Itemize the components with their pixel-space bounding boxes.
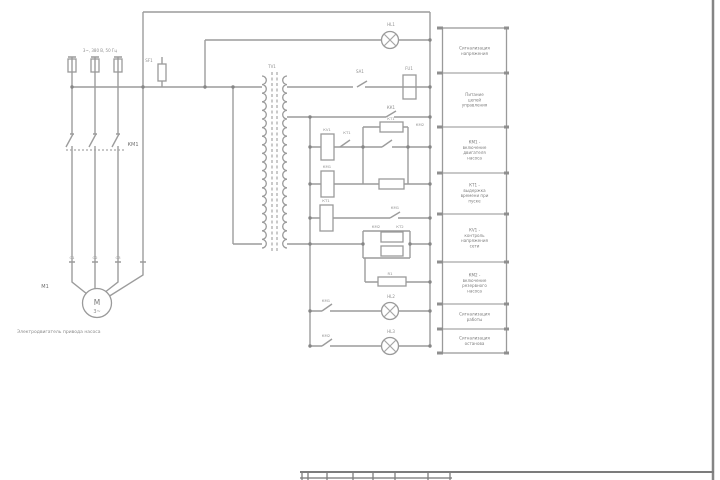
power-circuit: 3~, 380 В, 50 Гц КМ1 С1 С2 С3 (17, 12, 262, 335)
lamp-icon (382, 338, 399, 355)
legend-ticks (437, 27, 509, 355)
title-block (300, 472, 714, 480)
junction-dots (70, 38, 431, 347)
breaker-label: SF1 (145, 58, 153, 63)
secondary-winding (283, 76, 287, 248)
relay-coil (379, 179, 404, 189)
contactor-label: КМ1 (127, 142, 138, 148)
parallel-block-2: КМ2 КТ2 (363, 224, 410, 258)
breaker-icon (158, 57, 166, 87)
block-label: КМ2 (372, 224, 381, 229)
contact-label: КМ2 (322, 333, 331, 338)
coil-label: КМ1 (323, 164, 332, 169)
terminal-label: С3 (115, 255, 121, 260)
legend-column (437, 27, 509, 355)
relay-coil (320, 205, 333, 231)
coil-label: КТ1 (322, 198, 330, 203)
lamp-label: HL1 (387, 22, 395, 27)
motor-symbol: М 3~ (83, 289, 112, 318)
block-label: КТ1 (387, 116, 395, 121)
supply-label: 3~, 380 В, 50 Гц (83, 48, 117, 53)
relay-coil (321, 134, 334, 160)
schematic-page: 3~, 380 В, 50 Гц КМ1 С1 С2 С3 (0, 0, 720, 480)
control-fuse-label: FU1 (405, 66, 413, 71)
lamp-icon (382, 32, 399, 49)
relay-coil (321, 171, 334, 197)
transformer: ТV1 (233, 64, 287, 252)
motor-caption: Электродвигатель привода насоса (17, 329, 101, 335)
block-label: КТ2 (396, 224, 404, 229)
contact-label: КК1 (387, 105, 396, 110)
motor-letter: М (94, 298, 100, 307)
lamp-label: HL2 (387, 294, 395, 299)
neutral-wire (108, 12, 143, 297)
contact-label: КТ1 (343, 130, 351, 135)
motor-phase: 3~ (93, 309, 100, 315)
schematic-canvas: 3~, 380 В, 50 Гц КМ1 С1 С2 С3 (0, 0, 720, 480)
lamp-icon (382, 303, 399, 320)
resistor-label: R1 (387, 271, 393, 276)
switch-label: SA1 (356, 69, 364, 74)
terminal-label: С1 (69, 255, 75, 260)
contact-label: КМ1 (322, 298, 331, 303)
parallel-block-1: КТ1 КМ2 (363, 116, 430, 184)
control-circuit: SF1 HL1 ТV1 SA1 FU1 КК1 КV1 КТ1 (70, 12, 431, 355)
contact-label: КМ1 (391, 205, 400, 210)
block-label: КМ2 (416, 122, 425, 127)
resistor-icon (378, 277, 406, 286)
terminal-label: С2 (92, 255, 98, 260)
coil-label: КV1 (323, 127, 331, 132)
motor-ref: М1 (41, 284, 49, 290)
primary-winding (262, 76, 266, 248)
lamp-label: HL3 (387, 329, 395, 334)
transformer-label: ТV1 (267, 64, 276, 69)
